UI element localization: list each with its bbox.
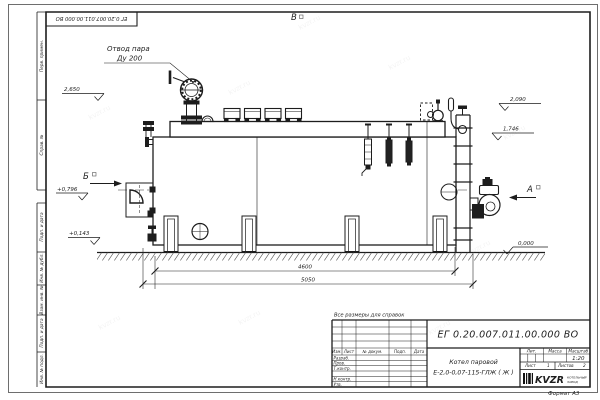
view-label-v: В xyxy=(291,13,297,23)
blueprint-sheet: kvzr.ru kvzr.ru kvzr.ru kvzr.ru kvzr.ru … xyxy=(0,0,600,400)
format-label: Формат А3 xyxy=(548,391,580,397)
dim-overall-length: 5050 xyxy=(301,278,315,284)
margin-label-inv-dubl: Инв. № дубл. xyxy=(39,253,45,282)
watermark-text: kvzr.ru xyxy=(237,309,262,327)
sheet-label: Лист xyxy=(524,363,536,368)
logo-sub2: ЗАВОД xyxy=(567,380,578,384)
steam-dome xyxy=(201,116,215,121)
elevation-value: +0,143 xyxy=(69,231,90,237)
margin-top-cells xyxy=(37,12,46,190)
roof-hatches xyxy=(224,109,302,122)
title-doc-number: ЕГ 0.20.007.011.00.000 ВО xyxy=(437,330,578,341)
view-arrow-a: А xyxy=(509,185,540,201)
reference-note: Все размеры для справок xyxy=(334,313,405,319)
leader-dot xyxy=(192,81,194,83)
elevation-0143: +0,143 xyxy=(68,231,100,245)
col-data: Дата xyxy=(413,349,425,354)
col-izm: Изм. xyxy=(332,349,341,354)
margin-label-inv-podl: Инв. № подл. xyxy=(39,354,45,384)
fan-assembly xyxy=(470,178,500,219)
burner-sight xyxy=(130,190,143,203)
top-stamp: ЕГ 0.20.007.011.00.000 ВО xyxy=(46,12,137,26)
product-name-line2: Е-2,0-0,07-115-ГЛЖ ( Ж ) xyxy=(433,370,513,377)
view-ref-mark xyxy=(300,15,304,19)
title-block: ЕГ 0.20.007.011.00.000 ВО Котел паровой … xyxy=(332,320,590,387)
view-label-b: Б xyxy=(83,172,89,182)
product-name-line1: Котел паровой xyxy=(449,359,498,366)
row-nkontr: Н.контр. xyxy=(334,377,352,382)
row-prov: Пров. xyxy=(334,361,346,366)
col-podp: Подп. xyxy=(394,349,406,354)
view-label-a: А xyxy=(526,185,533,195)
watermark-text: kvzr.ru xyxy=(227,79,252,97)
logo-bars-icon xyxy=(523,373,533,384)
margin-label-sprav-no: Справ. № xyxy=(39,134,45,155)
dim-support-span: 4600 xyxy=(298,265,312,271)
view-arrow-b: Б xyxy=(83,172,122,187)
boiler-drawing xyxy=(97,71,545,261)
steam-outlet-callout: Отвод пара Ду 200 xyxy=(104,45,194,83)
fan-motor xyxy=(483,180,492,186)
watermark-text: kvzr.ru xyxy=(387,54,412,72)
callout-line1: Отвод пара xyxy=(107,45,150,53)
lit-label: Лит. xyxy=(526,349,537,354)
arrowhead xyxy=(509,195,517,201)
margin-column-labels: Перв. примен. Справ. № Подп. и дата Инв.… xyxy=(39,40,45,384)
elevation-value: 0,000 xyxy=(518,241,534,247)
elevation-value: +0,796 xyxy=(57,187,78,193)
watermark-text: kvzr.ru xyxy=(297,14,322,32)
row-razrab: Разраб. xyxy=(334,355,350,360)
boiler-drawing-svg: kvzr.ru kvzr.ru kvzr.ru kvzr.ru kvzr.ru … xyxy=(0,0,600,400)
title-right-headers: Лит. Масса Масштаб xyxy=(526,349,589,354)
margin-label-vzam-inv: Взам. инв. № xyxy=(39,285,45,315)
logo-sub1: КОТЕЛЬНЫЙ xyxy=(567,375,587,380)
view-ref-mark xyxy=(93,173,97,177)
row-utv: Утв. xyxy=(334,382,342,387)
col-list: Лист xyxy=(343,349,355,354)
scale-label: Масштаб xyxy=(568,349,588,354)
elevation-0796: +0,796 xyxy=(56,187,88,200)
mass-label: Масса xyxy=(548,349,562,354)
company-logo: KVZR КОТЕЛЬНЫЙ ЗАВОД xyxy=(523,373,587,386)
margin-label-podp-data-2: Подп. и дата xyxy=(39,318,45,348)
sheets-value: 2 xyxy=(583,363,586,368)
col-doc: № докум. xyxy=(362,349,383,354)
view-ref-mark xyxy=(537,186,541,190)
callout-line2: Ду 200 xyxy=(116,55,143,63)
fan-base xyxy=(473,205,484,219)
scale-value: 1:20 xyxy=(572,356,585,362)
sheets-label: Листов xyxy=(557,363,574,368)
ground xyxy=(97,253,545,261)
callout-leader xyxy=(104,63,193,82)
steam-valve xyxy=(170,71,203,125)
watermark-text: kvzr.ru xyxy=(87,104,112,122)
blowdown-valve xyxy=(148,226,156,241)
row-tkontr: Т.контр. xyxy=(334,366,351,371)
arrowhead xyxy=(114,181,122,187)
ground-hatching xyxy=(97,253,545,261)
elevation-2650: 2,650 xyxy=(62,87,104,101)
sheet-value: 1 xyxy=(547,363,550,368)
elevation-2090: 2,090 xyxy=(499,97,541,111)
elevation-value: 2,650 xyxy=(64,87,80,93)
manhole xyxy=(192,224,208,240)
left-nozzles xyxy=(144,122,154,217)
top-stamp-doc-number: ЕГ 0.20.007.011.00.000 ВО xyxy=(56,15,128,21)
margin-label-podp-data-1: Подп. и дата xyxy=(39,212,45,242)
margin-label-perv-primen: Перв. примен. xyxy=(39,40,45,72)
logo-text: KVZR xyxy=(535,375,564,386)
watermark-text: kvzr.ru xyxy=(97,314,122,332)
elevation-value: 2,090 xyxy=(510,97,526,103)
elevation-value: 1,746 xyxy=(503,127,519,133)
